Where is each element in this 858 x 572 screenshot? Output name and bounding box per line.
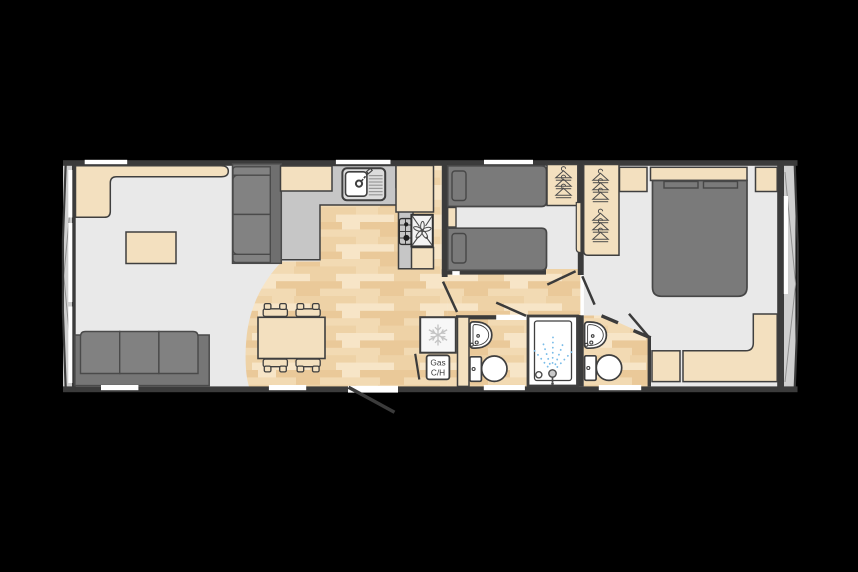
svg-text:Gas: Gas	[430, 358, 445, 368]
svg-text:C/H: C/H	[431, 368, 445, 378]
